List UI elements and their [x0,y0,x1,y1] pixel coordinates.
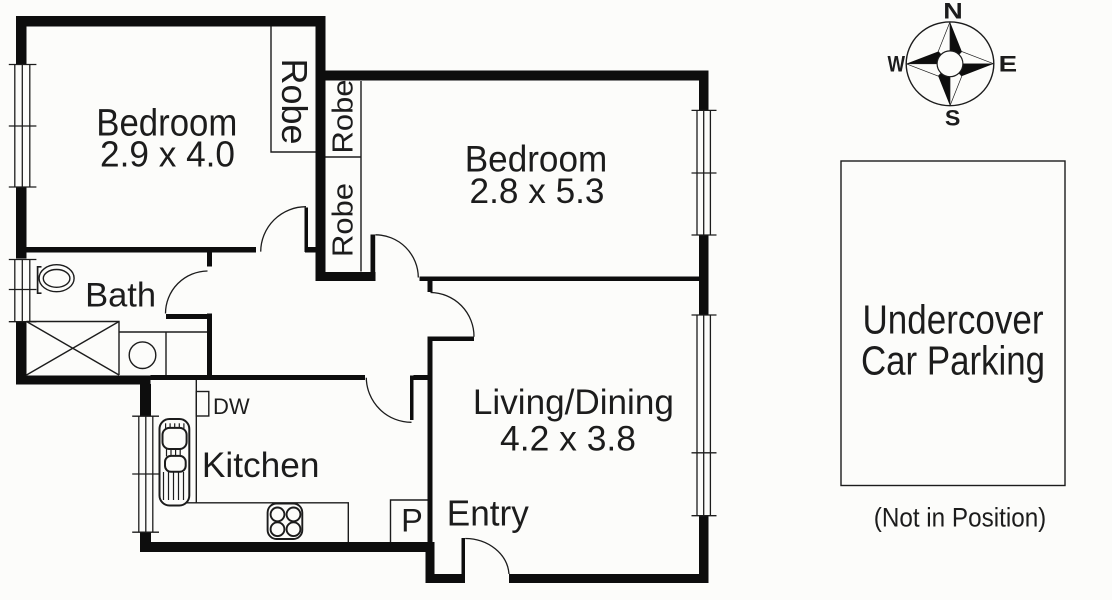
svg-text:Robe: Robe [274,59,315,145]
svg-text:2.9 x 4.0: 2.9 x 4.0 [100,133,235,174]
svg-text:(Not in Position): (Not in Position) [874,502,1047,532]
svg-text:N: N [943,0,963,23]
svg-text:Bath: Bath [85,277,156,315]
svg-text:Robe: Robe [328,183,360,257]
svg-text:Undercover: Undercover [863,296,1044,342]
svg-text:2.8 x 5.3: 2.8 x 5.3 [470,171,605,211]
svg-text:E: E [999,52,1018,77]
svg-text:DW: DW [213,394,250,419]
svg-text:Entry: Entry [447,493,529,534]
svg-text:S: S [945,106,961,131]
svg-text:Car Parking: Car Parking [861,338,1045,384]
svg-text:4.2 x 3.8: 4.2 x 3.8 [500,419,636,459]
svg-text:W: W [888,52,906,77]
svg-text:Kitchen: Kitchen [202,446,320,485]
svg-text:Robe: Robe [328,80,360,154]
svg-text:Living/Dining: Living/Dining [473,383,674,422]
svg-text:P: P [401,503,423,539]
